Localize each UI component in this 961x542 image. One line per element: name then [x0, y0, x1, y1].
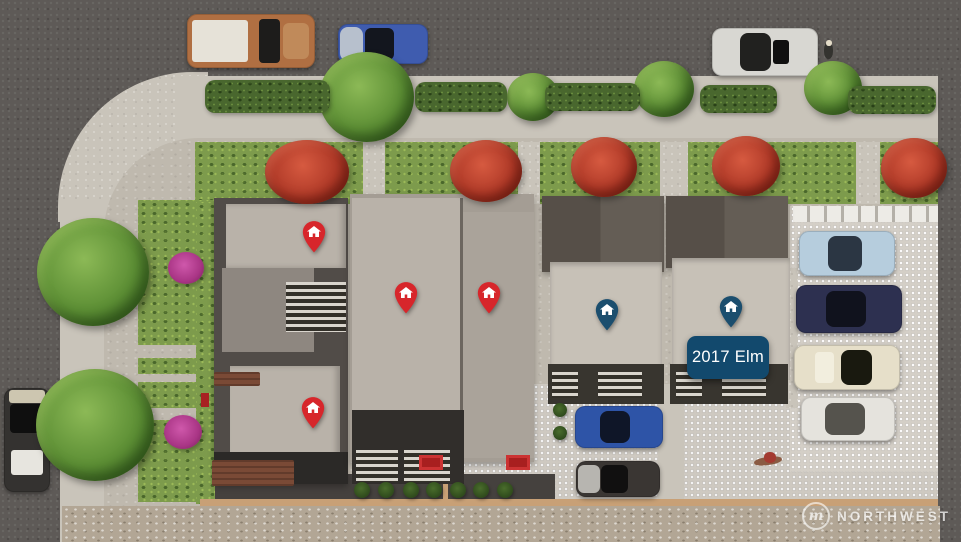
house-pin-icon [301, 220, 327, 254]
blue-house-pin-2[interactable] [718, 295, 744, 329]
red-house-pin-2[interactable] [393, 281, 419, 315]
blue-house-pin-1[interactable] [594, 298, 620, 332]
site-plan-map: 2017 Elm m NORTHWEST [0, 0, 961, 542]
house-pin-icon [718, 295, 744, 329]
pins-layer [0, 0, 961, 542]
address-label[interactable]: 2017 Elm [687, 336, 769, 379]
house-pin-icon [594, 298, 620, 332]
house-pin-icon [393, 281, 419, 315]
watermark: m NORTHWEST [802, 502, 951, 530]
house-pin-icon [300, 396, 326, 430]
mls-logo-icon: m [802, 502, 830, 530]
red-house-pin-4[interactable] [300, 396, 326, 430]
red-house-pin-1[interactable] [301, 220, 327, 254]
house-pin-icon [476, 281, 502, 315]
red-house-pin-3[interactable] [476, 281, 502, 315]
watermark-text: NORTHWEST [837, 509, 951, 524]
